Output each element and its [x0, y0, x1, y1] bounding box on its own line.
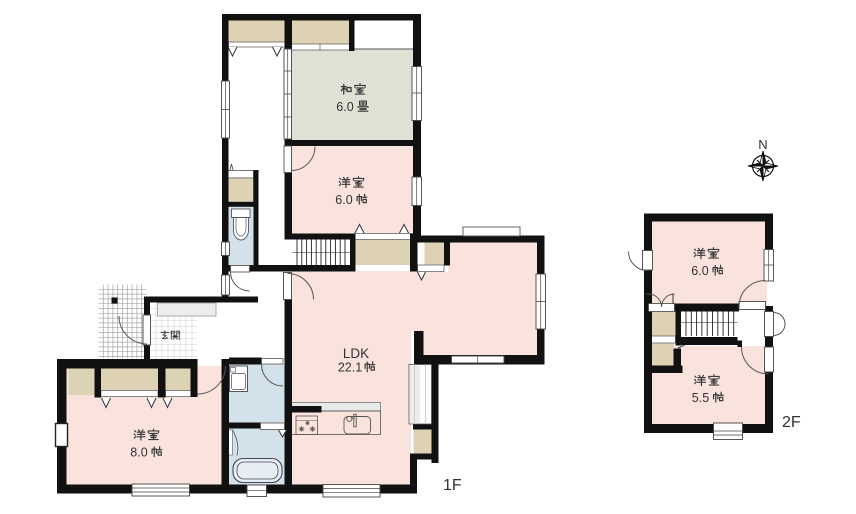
svg-text:8.0: 8.0: [130, 446, 147, 460]
svg-text:1F: 1F: [443, 477, 462, 494]
svg-text:N: N: [758, 137, 767, 152]
svg-text:6.0: 6.0: [691, 264, 708, 278]
svg-text:6.0: 6.0: [335, 193, 352, 207]
svg-text:LDK: LDK: [343, 346, 369, 361]
svg-text:2F: 2F: [782, 414, 801, 431]
svg-text:22.1: 22.1: [338, 361, 362, 375]
svg-text:5.5: 5.5: [692, 391, 709, 405]
svg-text:6.0: 6.0: [336, 100, 353, 114]
